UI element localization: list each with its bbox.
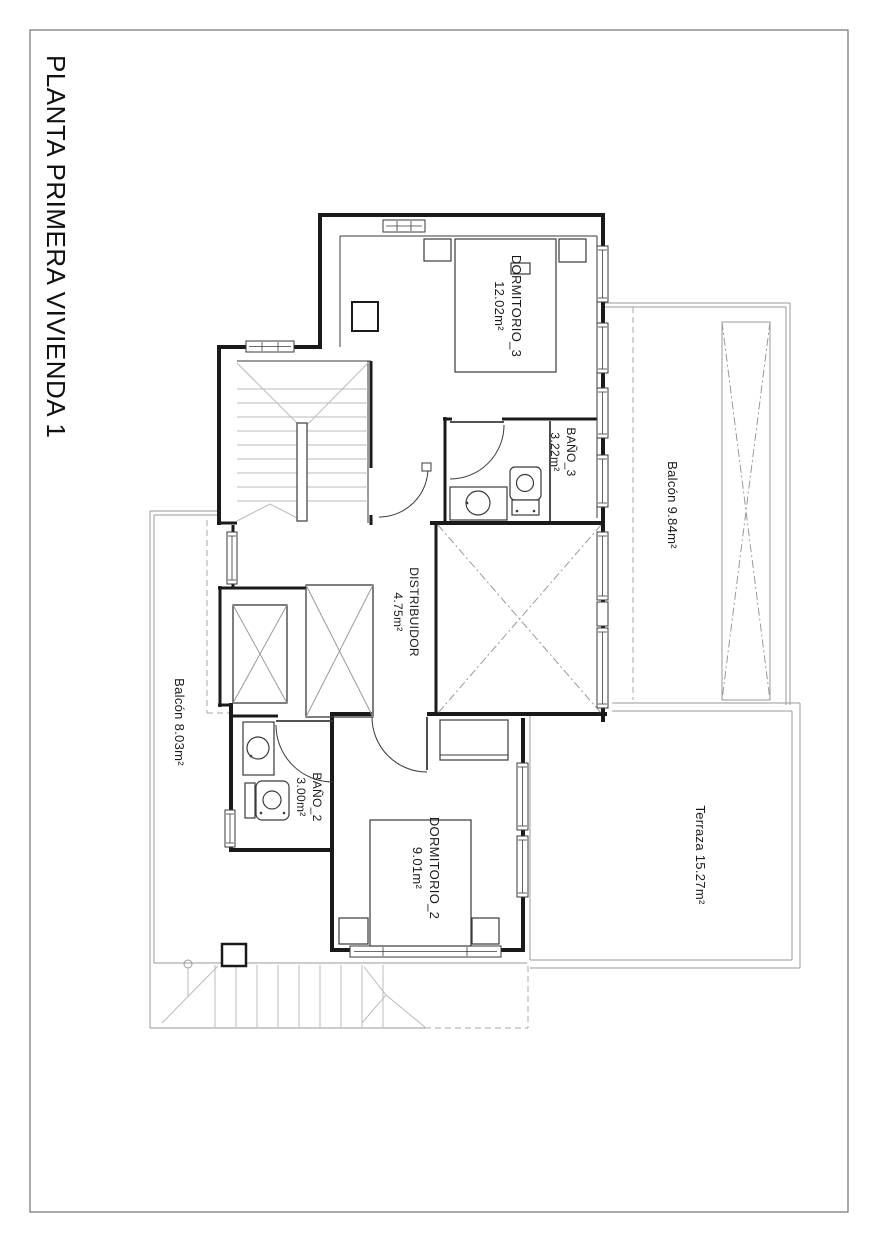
window <box>597 532 608 600</box>
wardrobe-dormitorio2 <box>440 720 508 760</box>
label-bano2-area: 3.00m² <box>294 777 308 816</box>
flue-column <box>352 302 378 331</box>
floor-plan-drawing: PLANTA PRIMERA VIVIENDA 1 DORMITORIO_3 1… <box>0 0 878 1241</box>
window <box>597 246 608 302</box>
label-dormitorio2-name: DORMITORIO_2 <box>427 817 442 919</box>
label-balcon-left: Balcón 8.03m² <box>172 678 187 766</box>
void-double-height <box>438 525 601 713</box>
exterior-staircase <box>150 960 528 1028</box>
pillar <box>222 944 246 966</box>
closet-b <box>306 585 373 717</box>
sink-bano2 <box>243 722 274 775</box>
nightstand <box>472 918 499 944</box>
terrace-parapet <box>530 703 800 968</box>
page-title: PLANTA PRIMERA VIVIENDA 1 <box>41 55 71 438</box>
window <box>597 628 608 708</box>
window <box>517 763 528 830</box>
door-stairs <box>379 463 431 517</box>
stair-handrail <box>297 423 307 521</box>
window <box>350 946 501 957</box>
door-dormitorio2 <box>372 717 427 772</box>
label-bano2-name: BAÑO_2 <box>310 772 324 821</box>
window <box>597 323 608 373</box>
label-dormitorio3-name: DORMITORIO_3 <box>509 255 524 357</box>
door-bano3 <box>450 422 504 479</box>
balcony-right <box>605 303 790 705</box>
toilet-bano2 <box>245 781 289 820</box>
window <box>383 220 425 232</box>
nightstand <box>424 239 451 261</box>
window <box>597 455 608 507</box>
label-terraza: Terraza 15.27m² <box>693 805 708 905</box>
window <box>517 836 528 897</box>
nightstand <box>339 918 368 944</box>
label-bano3-name: BAÑO_3 <box>564 427 578 476</box>
closet-a <box>233 605 287 703</box>
label-dormitorio2-area: 9.01m² <box>410 847 425 890</box>
page-border <box>30 30 848 1212</box>
interior-staircase <box>237 361 371 523</box>
window-sill <box>597 602 608 626</box>
label-bano3-area: 3.22m² <box>548 432 562 471</box>
label-distribuidor-name: DISTRIBUIDOR <box>407 567 421 657</box>
stair-start-marker <box>184 960 192 968</box>
floor-plan-sheet: PLANTA PRIMERA VIVIENDA 1 DORMITORIO_3 1… <box>0 0 878 1241</box>
sink-bano3 <box>450 487 507 520</box>
label-dormitorio3-area: 12.02m² <box>492 281 507 331</box>
nightstand <box>559 239 586 262</box>
label-balcon-right: Balcón 9.84m² <box>665 461 680 549</box>
label-distribuidor-area: 4.75m² <box>391 592 405 631</box>
toilet-bano3 <box>510 467 541 515</box>
window <box>227 532 237 584</box>
window <box>225 810 235 847</box>
window <box>597 388 608 438</box>
window <box>246 341 294 352</box>
